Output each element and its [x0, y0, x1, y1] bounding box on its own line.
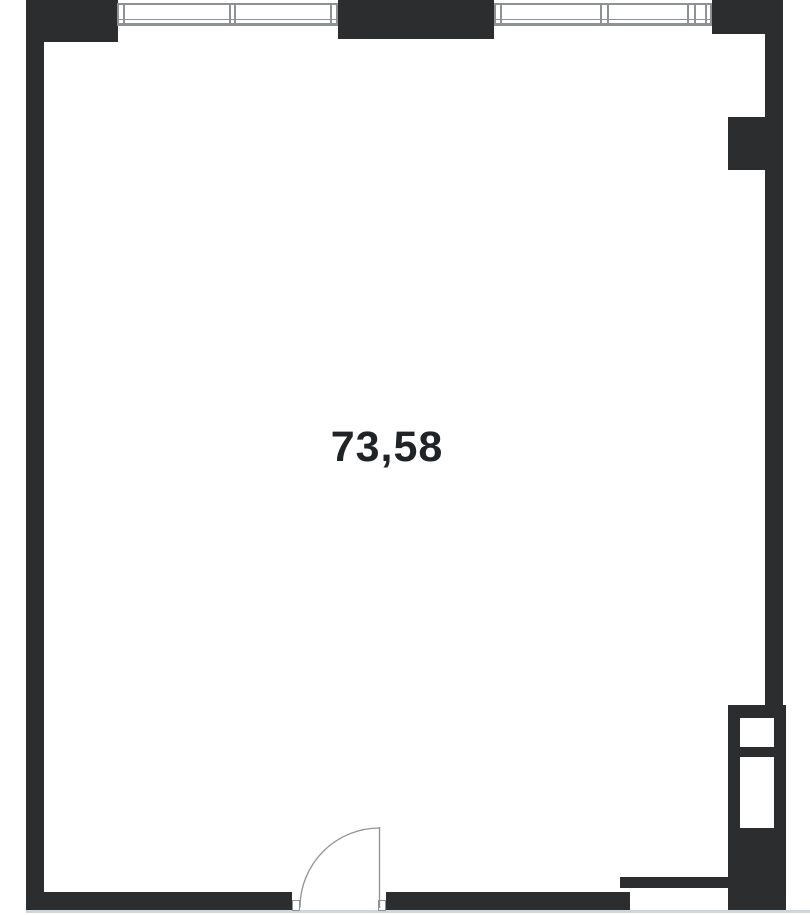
- wall-bottom-middle: [386, 892, 630, 910]
- window-mullion: [694, 5, 696, 23]
- window-2: [494, 3, 712, 26]
- window-mullion: [330, 5, 332, 23]
- window-mullion: [234, 5, 236, 23]
- window-1: [117, 3, 338, 26]
- wall-top-right: [712, 0, 783, 34]
- wall-bottom-right-block: [728, 828, 786, 910]
- window-glass-line: [496, 19, 710, 20]
- shaft-wall-divider: [740, 747, 774, 757]
- shaft-wall-left: [728, 705, 740, 828]
- floor-plan-canvas: 73,58: [0, 0, 810, 915]
- plan-bottom-edge-line: [26, 910, 810, 913]
- window-mullion: [229, 5, 231, 23]
- window-mullion: [705, 5, 707, 23]
- wall-bottom-left: [26, 892, 292, 910]
- window-mullion: [687, 5, 689, 23]
- door-jamb-left: [292, 900, 300, 911]
- wall-top-middle: [338, 0, 494, 39]
- window-mullion: [500, 5, 502, 23]
- window-mullion: [123, 5, 125, 23]
- wall-right: [765, 34, 783, 705]
- window-mullion: [600, 5, 602, 23]
- wall-bottom-step: [620, 877, 728, 888]
- room-area-label: 73,58: [297, 419, 477, 475]
- door-jamb-right: [378, 900, 386, 911]
- window-mullion: [607, 5, 609, 23]
- wall-left: [26, 42, 44, 910]
- wall-top-left: [26, 0, 118, 42]
- shaft-wall-right: [774, 705, 786, 828]
- door-arc-line: [300, 828, 380, 908]
- window-glass-line: [119, 19, 336, 20]
- wall-right-pilaster: [728, 117, 765, 170]
